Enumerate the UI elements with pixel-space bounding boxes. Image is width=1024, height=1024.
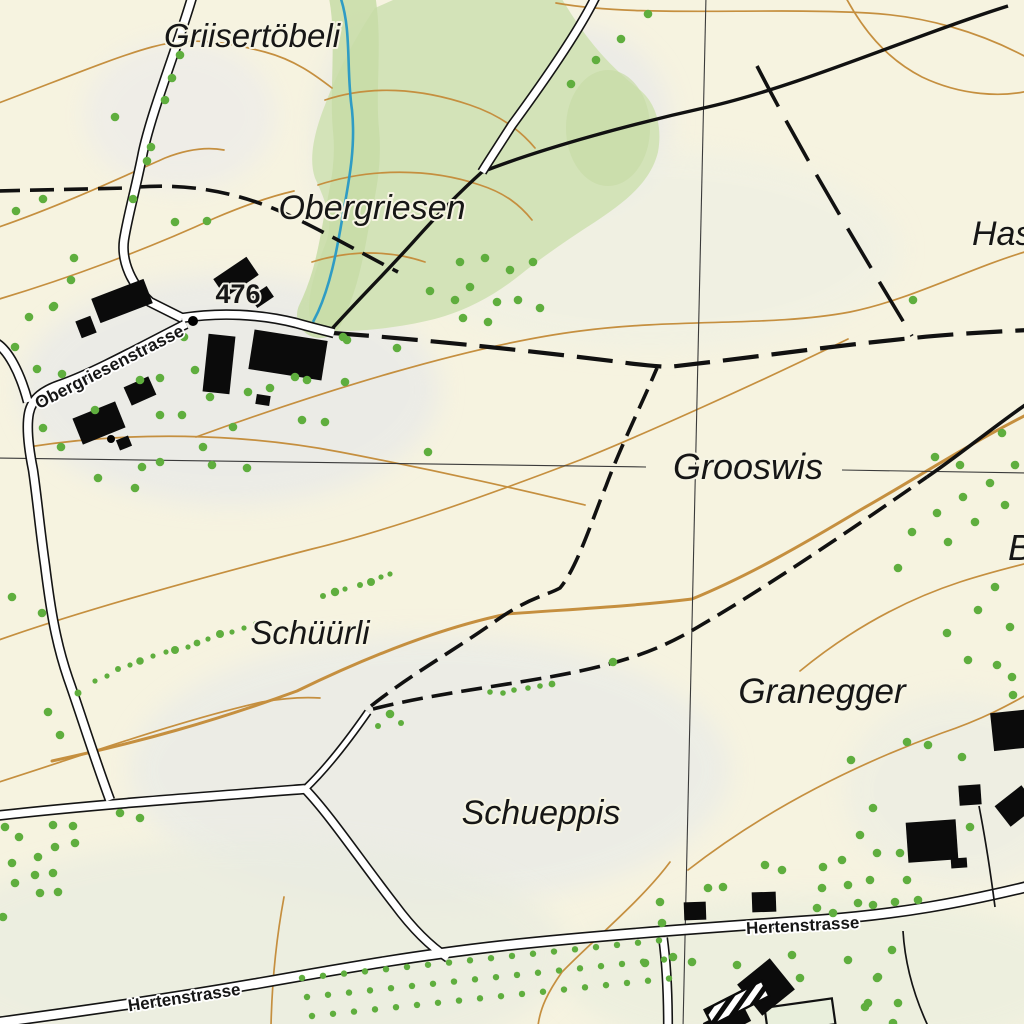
tree-dot — [971, 518, 980, 527]
orchard-tree-dot — [330, 1011, 336, 1017]
tree-dot — [761, 861, 770, 870]
tree-dot — [873, 974, 882, 983]
tree-dot — [1001, 501, 1010, 510]
tree-dot — [511, 687, 517, 693]
tree-dot — [398, 720, 404, 726]
tree-dot — [993, 661, 1002, 670]
tree-dot — [500, 690, 506, 696]
place-label-griisertoebeli: Griisertöbeli — [164, 17, 342, 54]
tree-dot — [549, 681, 556, 688]
tree-dot — [525, 685, 531, 691]
orchard-tree-dot — [472, 976, 478, 982]
tree-dot — [719, 883, 728, 892]
orchard-tree-dot — [425, 962, 431, 968]
tree-dot — [343, 336, 352, 345]
tree-dot — [244, 388, 253, 397]
tree-dot — [914, 896, 923, 905]
tree-dot — [1, 823, 10, 832]
tree-dot — [487, 689, 493, 695]
tree-dot — [617, 35, 626, 44]
orchard-tree-dot — [488, 955, 494, 961]
orchard-tree-dot — [372, 1006, 378, 1012]
tree-dot — [592, 56, 601, 65]
tree-dot — [656, 898, 665, 907]
forest-dark-texture — [566, 70, 650, 186]
place-label-b-clipped: B — [1008, 527, 1024, 568]
tree-dot — [161, 96, 170, 105]
orchard-tree-dot — [666, 975, 672, 981]
tree-dot — [168, 74, 177, 83]
tree-dot — [609, 658, 618, 667]
tree-dot — [896, 849, 905, 858]
tree-dot — [796, 974, 805, 983]
tree-dot — [131, 484, 140, 493]
tree-dot — [291, 373, 300, 382]
orchard-tree-dot — [577, 965, 583, 971]
tree-dot — [658, 919, 667, 928]
tree-row-dot — [171, 646, 179, 654]
tree-dot — [944, 538, 953, 547]
tree-dot — [116, 809, 125, 818]
map-viewport[interactable]: Griisertöbeli Obergriesen Grooswis Schüü… — [0, 0, 1024, 1024]
tree-dot — [847, 756, 856, 765]
tree-row-dot — [229, 629, 234, 634]
orchard-tree-dot — [556, 967, 562, 973]
building — [958, 784, 981, 805]
tree-dot — [813, 904, 822, 913]
tree-dot — [243, 464, 252, 473]
tree-dot — [964, 656, 973, 665]
tree-dot — [138, 463, 147, 472]
building — [951, 857, 968, 868]
tree-dot — [39, 195, 48, 204]
tree-dot — [15, 833, 24, 842]
building — [684, 902, 707, 921]
tree-dot — [44, 708, 53, 717]
orchard-tree-dot — [509, 953, 515, 959]
tree-row-dot — [104, 673, 109, 678]
tree-dot — [156, 374, 165, 383]
tree-dot — [484, 318, 493, 327]
tree-dot — [818, 884, 827, 893]
tree-dot — [136, 376, 145, 385]
tree-dot — [51, 843, 60, 852]
tree-dot — [704, 884, 713, 893]
tree-dot — [903, 876, 912, 885]
tree-dot — [67, 276, 76, 285]
tree-dot — [91, 406, 100, 415]
tree-row-dot — [194, 640, 201, 647]
orchard-tree-dot — [635, 940, 641, 946]
tree-row-dot — [342, 586, 347, 591]
orchard-tree-dot — [341, 970, 347, 976]
place-label-obergriesen: Obergriesen — [278, 189, 465, 227]
orchard-tree-dot — [320, 973, 326, 979]
tree-dot — [34, 853, 43, 862]
tree-dot — [958, 753, 967, 762]
orchard-tree-dot — [514, 972, 520, 978]
orchard-tree-dot — [446, 959, 452, 965]
tree-dot — [143, 157, 152, 166]
place-label-has-clipped: Has — [972, 215, 1024, 253]
tree-dot — [788, 951, 797, 960]
tree-dot — [386, 710, 395, 719]
tree-dot — [873, 849, 882, 858]
tree-dot — [208, 461, 217, 470]
tree-row-dot — [185, 644, 190, 649]
tree-dot — [49, 869, 58, 878]
tree-dot — [171, 218, 180, 227]
tree-dot — [49, 303, 58, 312]
orchard-tree-dot — [299, 975, 305, 981]
building — [752, 892, 777, 913]
tree-row-dot — [357, 582, 363, 588]
orchard-tree-dot — [640, 959, 646, 965]
tree-dot — [567, 80, 576, 89]
tree-dot — [891, 898, 900, 907]
spot-height-label: 476 — [215, 279, 260, 309]
tree-dot — [156, 411, 165, 420]
tree-dot — [986, 479, 995, 488]
tree-dot — [536, 304, 545, 313]
tree-dot — [129, 195, 138, 204]
place-label-grooswis: Grooswis — [673, 446, 823, 487]
tree-dot — [8, 859, 17, 868]
tree-dot — [156, 458, 165, 467]
tree-dot — [11, 343, 20, 352]
tree-dot — [644, 10, 653, 19]
tree-dot — [537, 683, 543, 689]
tree-dot — [303, 376, 312, 385]
tree-dot — [966, 823, 975, 832]
tree-dot — [459, 314, 468, 323]
orchard-tree-dot — [467, 957, 473, 963]
tree-dot — [529, 258, 538, 267]
tree-dot — [924, 741, 933, 750]
tree-dot — [733, 961, 742, 970]
orchard-tree-dot — [540, 989, 546, 995]
tree-dot — [861, 1003, 870, 1012]
orchard-tree-dot — [535, 970, 541, 976]
tree-dot — [147, 143, 156, 152]
tree-dot — [54, 888, 63, 897]
tree-row-dot — [75, 690, 82, 697]
tree-dot — [956, 461, 965, 470]
tree-row-dot — [115, 666, 121, 672]
orchard-tree-dot — [362, 968, 368, 974]
orchard-tree-dot — [451, 978, 457, 984]
tree-dot — [393, 344, 402, 353]
orchard-tree-dot — [325, 992, 331, 998]
tree-dot — [869, 901, 878, 910]
tree-dot — [933, 509, 942, 518]
tree-dot — [111, 113, 120, 122]
orchard-tree-dot — [530, 951, 536, 957]
tree-dot — [844, 956, 853, 965]
tree-dot — [894, 564, 903, 573]
building — [906, 819, 959, 862]
tree-dot — [908, 528, 917, 537]
tree-dot — [203, 217, 212, 226]
orchard-tree-dot — [304, 994, 310, 1000]
tree-dot — [71, 839, 80, 848]
orchard-tree-dot — [645, 978, 651, 984]
tree-row-dot — [367, 578, 375, 586]
orchard-tree-dot — [519, 991, 525, 997]
tree-dot — [493, 298, 502, 307]
tree-dot — [49, 821, 58, 830]
tree-dot — [778, 866, 787, 875]
tree-dot — [136, 814, 145, 823]
tree-dot — [36, 889, 45, 898]
tree-dot — [998, 429, 1007, 438]
tree-dot — [669, 953, 678, 962]
tree-dot — [894, 999, 903, 1008]
tree-dot — [341, 378, 350, 387]
orchard-tree-dot — [598, 963, 604, 969]
tree-dot — [819, 863, 828, 872]
tree-dot — [321, 418, 330, 427]
tree-row-dot — [216, 630, 224, 638]
orchard-tree-dot — [383, 966, 389, 972]
tree-row-dot — [320, 593, 326, 599]
tree-dot — [1006, 623, 1015, 632]
orchard-tree-dot — [404, 964, 410, 970]
orchard-tree-dot — [456, 997, 462, 1003]
orchard-tree-dot — [593, 944, 599, 950]
tree-dot — [866, 876, 875, 885]
tree-dot — [688, 958, 697, 967]
place-label-granegger: Granegger — [738, 672, 907, 711]
orchard-tree-dot — [624, 980, 630, 986]
tree-dot — [456, 258, 465, 267]
map-canvas[interactable]: Griisertöbeli Obergriesen Grooswis Schüü… — [0, 0, 1024, 1024]
tree-dot — [33, 365, 42, 374]
tree-dot — [844, 881, 853, 890]
tree-dot — [1011, 461, 1020, 470]
orchard-tree-dot — [435, 1000, 441, 1006]
tree-dot — [426, 287, 435, 296]
tree-row-dot — [127, 662, 132, 667]
orchard-tree-dot — [393, 1004, 399, 1010]
tree-dot — [959, 493, 968, 502]
tree-row-dot — [163, 649, 168, 654]
tree-row-dot — [205, 636, 210, 641]
tree-dot — [8, 593, 17, 602]
orchard-tree-dot — [430, 981, 436, 987]
orchard-tree-dot — [661, 956, 667, 962]
tree-dot — [506, 266, 515, 275]
tree-dot — [903, 738, 912, 747]
tree-row-dot — [136, 657, 144, 665]
tree-dot — [466, 283, 475, 292]
orchard-tree-dot — [414, 1002, 420, 1008]
place-label-schuurli: Schüürli — [250, 614, 371, 651]
tree-dot — [70, 254, 79, 263]
tree-dot — [56, 731, 65, 740]
orchard-tree-dot — [572, 946, 578, 952]
tree-dot — [199, 443, 208, 452]
tree-dot — [31, 871, 40, 880]
tree-dot — [178, 411, 187, 420]
orchard-tree-dot — [477, 995, 483, 1001]
orchard-tree-dot — [551, 948, 557, 954]
tree-dot — [514, 296, 523, 305]
orchard-tree-dot — [346, 989, 352, 995]
tree-dot — [39, 424, 48, 433]
tree-dot — [266, 384, 275, 393]
orchard-tree-dot — [582, 984, 588, 990]
tree-dot — [856, 831, 865, 840]
orchard-tree-dot — [351, 1008, 357, 1014]
tree-dot — [57, 443, 66, 452]
tree-row-dot — [150, 653, 155, 658]
orchard-tree-dot — [309, 1013, 315, 1019]
tree-dot — [69, 822, 78, 831]
tree-dot — [869, 804, 878, 813]
tree-dot — [1009, 691, 1018, 700]
tree-dot — [424, 448, 433, 457]
orchard-tree-dot — [388, 985, 394, 991]
tree-dot — [931, 453, 940, 462]
tree-row-dot — [241, 625, 246, 630]
tree-dot — [1008, 673, 1017, 682]
orchard-tree-dot — [493, 974, 499, 980]
small-structure-dot — [107, 435, 115, 443]
tree-dot — [991, 583, 1000, 592]
orchard-tree-dot — [367, 987, 373, 993]
orchard-tree-dot — [656, 937, 662, 943]
tree-dot — [25, 313, 34, 322]
building — [990, 709, 1024, 751]
tree-dot — [838, 856, 847, 865]
tree-dot — [854, 899, 863, 908]
tree-dot — [191, 366, 200, 375]
orchard-tree-dot — [498, 993, 504, 999]
tree-row-dot — [331, 588, 339, 596]
orchard-tree-dot — [614, 942, 620, 948]
tree-dot — [38, 609, 47, 618]
tree-dot — [298, 416, 307, 425]
orchard-tree-dot — [561, 986, 567, 992]
tree-dot — [451, 296, 460, 305]
tree-dot — [909, 296, 918, 305]
orchard-tree-dot — [603, 982, 609, 988]
place-label-schueppis: Schueppis — [462, 794, 621, 832]
tree-dot — [12, 207, 21, 216]
tree-row-dot — [387, 571, 392, 576]
tree-dot — [888, 946, 897, 955]
tree-row-dot — [378, 574, 383, 579]
tree-row-dot — [92, 678, 97, 683]
tree-dot — [943, 629, 952, 638]
tree-dot — [974, 606, 983, 615]
spot-height-dot — [188, 316, 198, 326]
orchard-tree-dot — [409, 983, 415, 989]
tree-dot — [481, 254, 490, 263]
tree-dot — [206, 393, 215, 402]
tree-dot — [94, 474, 103, 483]
tree-dot — [375, 723, 381, 729]
orchard-tree-dot — [619, 961, 625, 967]
tree-dot — [11, 879, 20, 888]
tree-dot — [229, 423, 238, 432]
